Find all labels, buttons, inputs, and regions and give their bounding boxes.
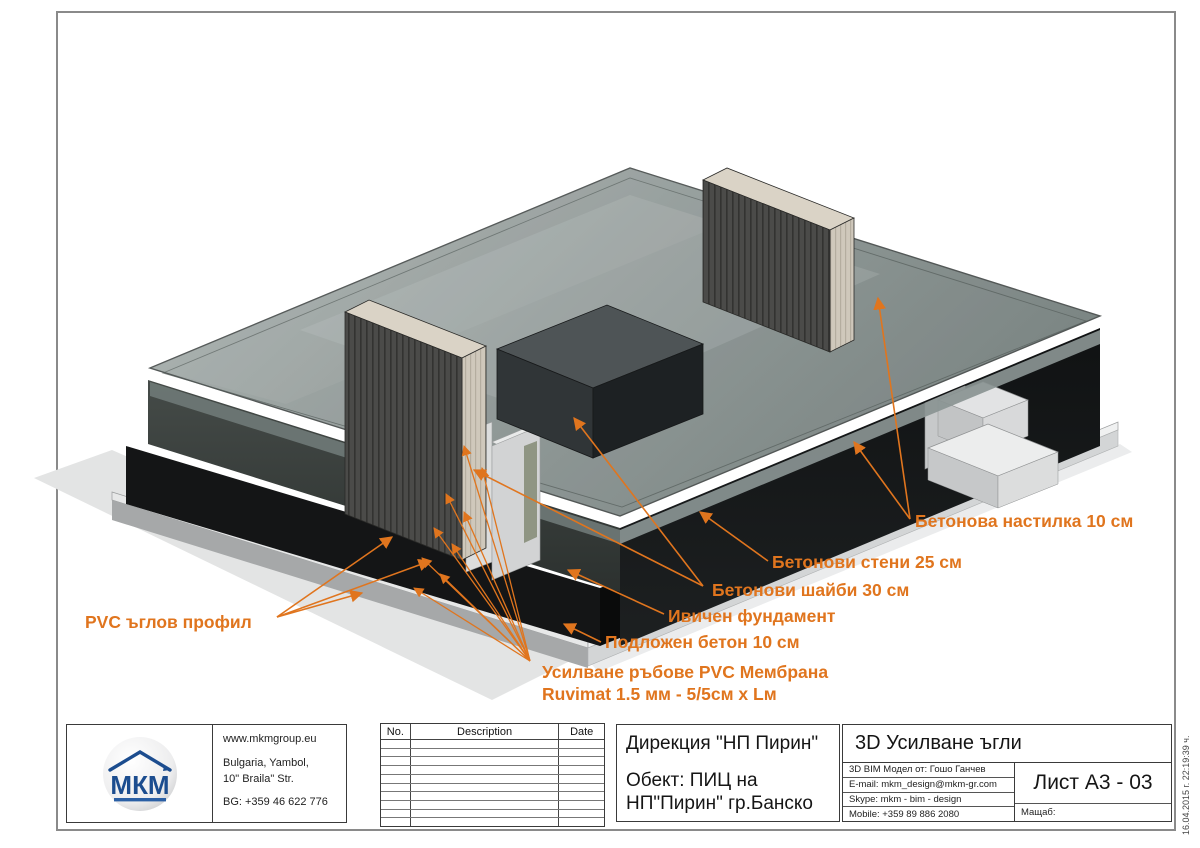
3d-model-view: Бетонова настилка 10 см Бетонови стени 2… xyxy=(0,0,1200,722)
object-line-1: Обект: ПИЦ на xyxy=(626,769,839,792)
company-logo: МКМ xyxy=(67,725,213,822)
label-blinding: Подложен бетон 10 см xyxy=(605,632,800,652)
revision-row xyxy=(381,801,604,810)
label-shear-walls: Бетонови шайби 30 см xyxy=(712,580,909,600)
skype: Skype: mkm - bim - design xyxy=(843,793,1014,808)
sheet-info-block: 3D Усилване ъгли 3D BIM Модел от: Гошо Г… xyxy=(842,724,1172,822)
client-name: Дирекция "НП Пирин" xyxy=(626,733,839,755)
revision-row xyxy=(381,775,604,784)
mobile: Mobile: +359 89 886 2080 xyxy=(843,807,1014,821)
label-edge-reinf-1: Усилване ръбове PVC Мембрана xyxy=(542,662,828,682)
revision-col-no: No. xyxy=(381,724,411,739)
sheet-number: Лист А3 - 03 xyxy=(1015,763,1171,804)
revision-row xyxy=(381,810,604,819)
label-strip-footing: Ивичен фундамент xyxy=(668,606,836,626)
sheet-title: 3D Усилване ъгли xyxy=(843,725,1171,763)
revision-row xyxy=(381,757,604,766)
logo-text: МКМ xyxy=(110,770,169,800)
revision-table-header: No. Description Date xyxy=(381,724,604,740)
label-edge-reinf-2: Ruvimat 1.5 мм - 5/5см x Lм xyxy=(542,684,777,704)
scale-label: Мащаб: xyxy=(1015,804,1171,821)
revision-row xyxy=(381,766,604,775)
company-address-1: Bulgaria, Yambol, xyxy=(223,757,346,771)
mkm-logo-icon: МКМ xyxy=(80,728,200,820)
ribbed-panel-left xyxy=(345,300,486,560)
drawing-sheet: Бетонова настилка 10 см Бетонови стени 2… xyxy=(0,0,1200,848)
revision-table: No. Description Date xyxy=(380,723,605,827)
revision-row xyxy=(381,818,604,826)
revision-row xyxy=(381,740,604,749)
revision-col-date: Date xyxy=(559,724,604,739)
label-floor-screed: Бетонова настилка 10 см xyxy=(915,511,1133,531)
revision-row xyxy=(381,792,604,801)
revision-row xyxy=(381,784,604,793)
bim-author: 3D BIM Модел от: Гошо Ганчев xyxy=(843,763,1014,778)
company-website: www.mkmgroup.eu xyxy=(223,733,346,747)
label-pvc-corner: PVC ъглов профил xyxy=(85,612,252,632)
company-address-2: 10" Braila" Str. xyxy=(223,773,346,787)
object-line-2: НП"Пирин" гр.Банско xyxy=(626,792,839,815)
plot-timestamp: 16.04.2015 г. 22:19:39 ч. xyxy=(1181,725,1195,835)
email: E-mail: mkm_design@mkm-gr.com xyxy=(843,778,1014,793)
project-title-block: Дирекция "НП Пирин" Обект: ПИЦ на НП"Пир… xyxy=(616,724,840,822)
revision-row xyxy=(381,749,604,758)
designer-info: 3D BIM Модел от: Гошо Ганчев E-mail: mkm… xyxy=(843,763,1015,821)
revision-col-desc: Description xyxy=(411,724,560,739)
label-walls: Бетонови стени 25 см xyxy=(772,552,962,572)
company-phone: BG: +359 46 622 776 xyxy=(223,796,346,810)
company-contact: www.mkmgroup.eu Bulgaria, Yambol, 10" Br… xyxy=(213,725,346,822)
company-block: МКМ www.mkmgroup.eu Bulgaria, Yambol, 10… xyxy=(66,724,347,823)
